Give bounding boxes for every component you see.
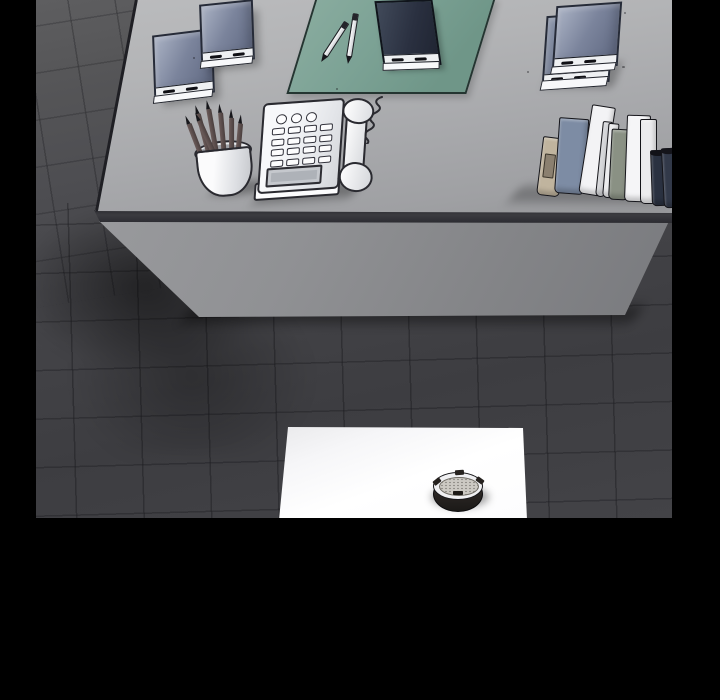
phone-key <box>319 134 332 142</box>
desk-speck <box>336 88 338 90</box>
phone-key <box>320 123 333 131</box>
handset-mouthpiece <box>338 161 374 193</box>
ashtray-notch <box>455 470 464 476</box>
book-top-edge <box>661 148 672 155</box>
phone-key <box>286 158 299 166</box>
white-table <box>277 424 529 518</box>
phone-key <box>272 127 285 135</box>
telephone-body <box>257 98 345 194</box>
bookend-notch <box>542 153 556 178</box>
ashtray <box>431 470 487 516</box>
phone-key <box>288 126 301 134</box>
desk-speck <box>624 12 626 14</box>
phone-key <box>303 146 316 154</box>
desk-speck <box>193 57 195 59</box>
comic-panel <box>0 0 720 700</box>
book-row <box>528 95 672 215</box>
label-dash <box>415 57 427 61</box>
phone-key <box>287 147 300 155</box>
phone-key <box>318 155 331 163</box>
desk-speck <box>527 71 529 73</box>
label-dash <box>391 58 403 62</box>
phone-key <box>271 148 284 156</box>
phone-key <box>304 125 317 133</box>
memo-pad <box>374 0 441 67</box>
phone-round-button <box>291 113 303 124</box>
phone-display <box>265 165 322 188</box>
stacked-notebook-top <box>552 1 622 70</box>
phone-key <box>287 137 300 145</box>
scene <box>36 0 672 518</box>
desk-speck <box>622 66 625 68</box>
phone-round-button <box>306 112 318 123</box>
phone-key <box>319 144 332 152</box>
telephone <box>252 96 382 208</box>
phone-round-button <box>276 114 288 125</box>
phone-key <box>271 138 284 146</box>
phone-key <box>303 135 316 143</box>
ashtray-notch <box>453 491 463 495</box>
phone-key <box>270 159 283 167</box>
frame-bar-bottom <box>0 518 720 700</box>
phone-keypad <box>270 123 333 167</box>
phone-key <box>302 156 315 164</box>
notebook-right <box>199 0 255 65</box>
